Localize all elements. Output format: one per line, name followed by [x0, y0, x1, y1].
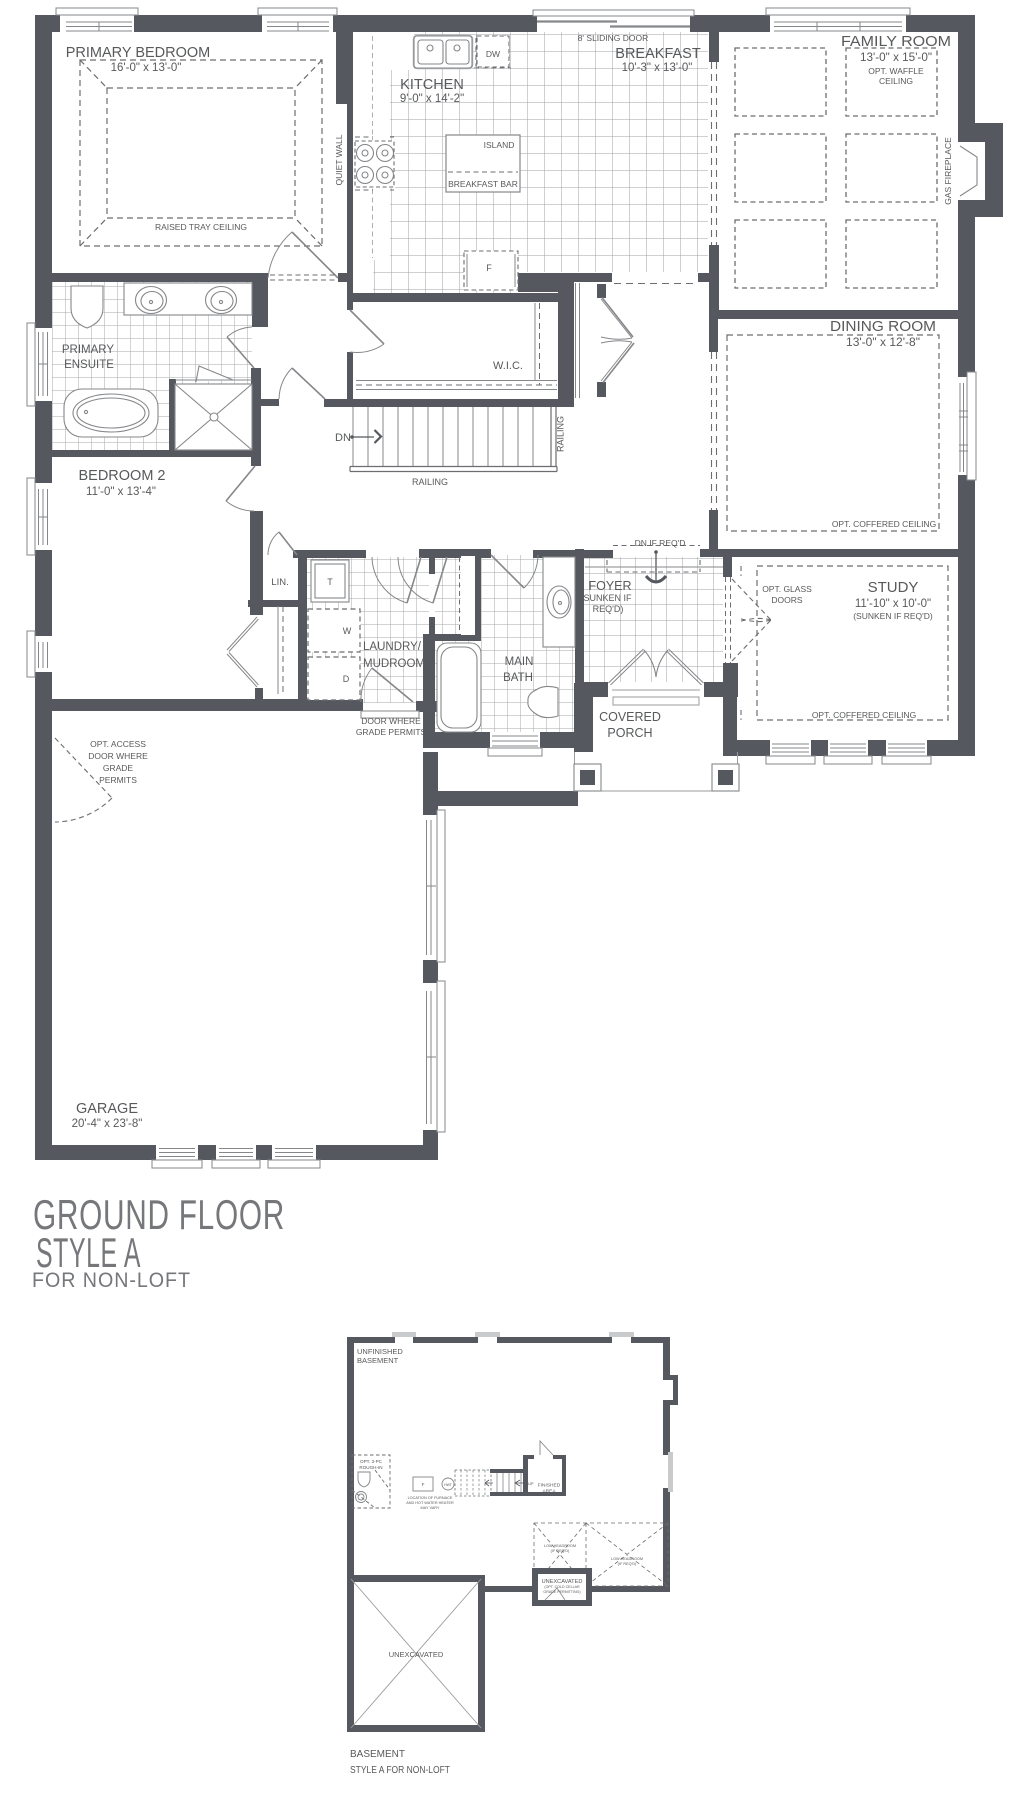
svg-text:LOW HEADROOM: LOW HEADROOM [544, 1544, 576, 1548]
svg-text:(IF REQ'D): (IF REQ'D) [618, 1562, 637, 1566]
svg-text:GAS FIREPLACE: GAS FIREPLACE [943, 137, 953, 205]
svg-text:LAUNDRY/: LAUNDRY/ [363, 641, 422, 653]
svg-text:AREA: AREA [542, 1489, 556, 1495]
svg-text:OPT. WAFFLE: OPT. WAFFLE [868, 66, 924, 76]
svg-text:RAILING: RAILING [412, 477, 448, 487]
svg-text:UNFINISHED: UNFINISHED [357, 1347, 403, 1356]
svg-text:GRADE PERMITS: GRADE PERMITS [356, 727, 427, 737]
svg-text:F: F [422, 1482, 425, 1487]
svg-text:BEDROOM 2: BEDROOM 2 [78, 468, 165, 484]
svg-text:11'-10" x 10'-0": 11'-10" x 10'-0" [855, 598, 931, 610]
svg-text:FOR NON-LOFT: FOR NON-LOFT [32, 1269, 191, 1292]
svg-text:MAIN: MAIN [505, 656, 534, 668]
svg-text:OPT. COFFERED CEILING: OPT. COFFERED CEILING [832, 519, 936, 529]
svg-text:(OPT. COLD CELLAR: (OPT. COLD CELLAR [544, 1585, 580, 1589]
svg-text:RAISED TRAY CEILING: RAISED TRAY CEILING [155, 222, 247, 232]
svg-text:PORCH: PORCH [607, 726, 652, 740]
svg-text:ENSUITE: ENSUITE [64, 359, 114, 371]
svg-text:13'-0" x 15'-0": 13'-0" x 15'-0" [860, 52, 932, 64]
svg-text:BASEMENT: BASEMENT [357, 1356, 399, 1365]
svg-text:UNEXCAVATED: UNEXCAVATED [389, 1650, 444, 1659]
svg-text:DOOR WHERE: DOOR WHERE [88, 751, 148, 761]
svg-text:PERMITS: PERMITS [99, 775, 137, 785]
svg-text:KITCHEN: KITCHEN [400, 77, 464, 93]
svg-text:FAMILY ROOM: FAMILY ROOM [841, 34, 951, 50]
svg-text:8' SLIDING DOOR: 8' SLIDING DOOR [578, 33, 649, 43]
svg-text:STUDY: STUDY [868, 579, 919, 596]
svg-text:DW: DW [486, 49, 500, 59]
svg-text:T: T [327, 577, 333, 587]
svg-text:FOYER: FOYER [588, 579, 631, 593]
svg-text:(SUNKEN IF REQ'D): (SUNKEN IF REQ'D) [853, 611, 933, 621]
svg-text:OPT. GLASS: OPT. GLASS [762, 584, 812, 594]
svg-text:10'-3" x 13'-0": 10'-3" x 13'-0" [622, 62, 693, 74]
svg-text:OPT. ACCESS: OPT. ACCESS [90, 739, 146, 749]
svg-text:16'-0" x 13'-0": 16'-0" x 13'-0" [111, 62, 182, 74]
svg-text:W.I.C.: W.I.C. [493, 360, 523, 372]
svg-text:F: F [486, 263, 492, 273]
svg-text:ISLAND: ISLAND [484, 140, 515, 150]
svg-text:RAILING: RAILING [556, 416, 566, 452]
svg-text:QUIET WALL: QUIET WALL [334, 134, 344, 185]
svg-text:GARAGE: GARAGE [76, 1101, 138, 1117]
svg-text:AND HOT WATER HEATER: AND HOT WATER HEATER [406, 1501, 454, 1505]
svg-text:BATH: BATH [503, 672, 533, 684]
svg-text:ROUGH-IN: ROUGH-IN [359, 1465, 382, 1470]
svg-text:OPT. 3-PC: OPT. 3-PC [360, 1459, 383, 1464]
svg-text:COVERED: COVERED [599, 710, 661, 724]
svg-text:9'-0" x 14'-2": 9'-0" x 14'-2" [400, 93, 464, 105]
svg-text:20'-4" x 23'-8": 20'-4" x 23'-8" [72, 1118, 143, 1130]
svg-text:OPT. COFFERED CEILING: OPT. COFFERED CEILING [812, 710, 916, 720]
svg-text:UP: UP [528, 1481, 534, 1486]
svg-text:GRADE: GRADE [103, 763, 134, 773]
svg-text:LOCATION OF FURNACE: LOCATION OF FURNACE [408, 1496, 453, 1500]
svg-text:BASEMENT: BASEMENT [350, 1749, 405, 1760]
svg-text:FINISHED: FINISHED [538, 1483, 561, 1489]
svg-text:MAY VARY: MAY VARY [421, 1506, 440, 1510]
svg-text:D: D [343, 674, 350, 684]
svg-text:PRIMARY: PRIMARY [62, 344, 115, 356]
svg-text:DINING ROOM: DINING ROOM [830, 319, 936, 335]
svg-text:13'-0" x 12'-8": 13'-0" x 12'-8" [846, 337, 920, 349]
svg-text:DN IF REQ'D: DN IF REQ'D [635, 538, 686, 548]
svg-text:BREAKFAST: BREAKFAST [615, 46, 701, 62]
svg-text:DOORS: DOORS [771, 595, 803, 605]
svg-text:GRADE PERMITTING): GRADE PERMITTING) [543, 1590, 580, 1594]
svg-text:DOOR WHERE: DOOR WHERE [361, 716, 421, 726]
svg-text:CEILING: CEILING [879, 76, 913, 86]
svg-text:REQ'D): REQ'D) [593, 604, 624, 614]
svg-text:HWT: HWT [444, 1483, 452, 1487]
svg-text:PRIMARY BEDROOM: PRIMARY BEDROOM [66, 45, 211, 61]
svg-text:11'-0" x 13'-4": 11'-0" x 13'-4" [86, 486, 156, 498]
svg-text:LOW HEADROOM: LOW HEADROOM [611, 1557, 643, 1561]
svg-text:BREAKFAST BAR: BREAKFAST BAR [448, 179, 518, 189]
svg-text:STYLE A FOR NON-LOFT: STYLE A FOR NON-LOFT [350, 1765, 450, 1776]
svg-text:(SUNKEN IF: (SUNKEN IF [580, 593, 632, 603]
svg-text:DN: DN [335, 432, 351, 444]
svg-text:MUDROOM: MUDROOM [363, 658, 425, 670]
svg-text:LIN.: LIN. [271, 577, 288, 588]
svg-text:W: W [343, 626, 352, 636]
svg-text:(IF REQ'D): (IF REQ'D) [551, 1549, 570, 1553]
